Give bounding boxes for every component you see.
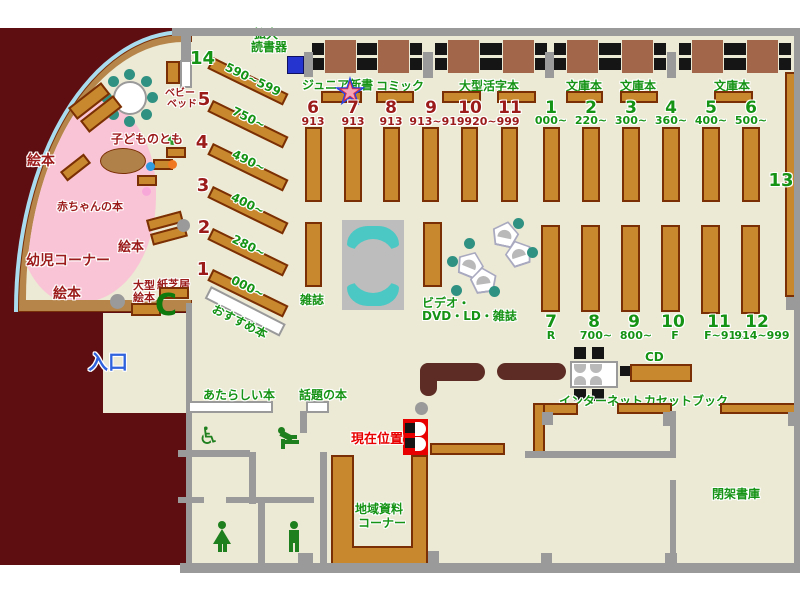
wall-bottom bbox=[180, 563, 800, 573]
chair-dot bbox=[489, 286, 500, 297]
wall-segment bbox=[226, 497, 314, 503]
chair-dot bbox=[141, 76, 152, 87]
pillar bbox=[423, 52, 433, 78]
pillar-dot bbox=[415, 402, 428, 415]
reading-table bbox=[312, 40, 369, 73]
reading-table bbox=[435, 40, 492, 73]
shelf-number: 13 bbox=[764, 170, 798, 191]
wall-segment bbox=[258, 497, 265, 565]
marker-seat bbox=[405, 438, 415, 448]
reading-table bbox=[609, 40, 666, 73]
bookshelf bbox=[701, 225, 720, 314]
video-shelf bbox=[423, 222, 442, 287]
chair-dot bbox=[124, 116, 135, 127]
topical-books-label: 話題の本 bbox=[299, 386, 347, 403]
magazine-label: 雑誌 bbox=[300, 291, 324, 308]
bookshelf bbox=[621, 225, 640, 312]
service-counter bbox=[497, 363, 566, 380]
video-label: DVD・LD・雑誌 bbox=[422, 307, 517, 324]
kids-room-door bbox=[110, 294, 125, 309]
chair bbox=[574, 347, 586, 359]
shelf-number: 2 bbox=[196, 217, 212, 238]
women-toilet-icon bbox=[213, 521, 231, 552]
new-books-label: あたらしい本 bbox=[203, 386, 275, 403]
stool-pink bbox=[142, 187, 151, 196]
bookshelf bbox=[741, 225, 760, 314]
reading-table bbox=[490, 40, 547, 73]
bookshelf bbox=[742, 127, 760, 202]
cd-label: CD bbox=[645, 350, 664, 364]
chair bbox=[620, 366, 630, 376]
shelf-number: 1 bbox=[195, 259, 211, 280]
wall-segment bbox=[178, 450, 250, 457]
kids-oval-rug bbox=[100, 148, 146, 174]
bookshelf bbox=[582, 127, 600, 202]
public-phone-icon: C bbox=[155, 288, 177, 323]
wall-top bbox=[172, 28, 800, 36]
pillar bbox=[545, 52, 554, 78]
shelf-number: 14 bbox=[190, 48, 214, 69]
bookshelf bbox=[501, 127, 518, 202]
step-shelf bbox=[166, 147, 186, 158]
bookshelf bbox=[661, 225, 680, 312]
bookshelf bbox=[344, 127, 362, 202]
reading-table bbox=[679, 40, 736, 73]
pillar-dot bbox=[177, 219, 190, 232]
bookshelf bbox=[541, 225, 560, 312]
reading-table bbox=[734, 40, 791, 73]
bookshelf bbox=[422, 127, 439, 202]
bookshelf bbox=[533, 403, 545, 453]
chair bbox=[592, 347, 604, 359]
stool-orange bbox=[168, 160, 177, 169]
chair-dot bbox=[527, 247, 538, 258]
shelf-number: 3 bbox=[195, 175, 211, 196]
pillar bbox=[304, 52, 313, 77]
bookshelf bbox=[622, 127, 640, 202]
kodomonotomo-label: 子どものとも bbox=[111, 130, 183, 147]
magazine-shelf bbox=[305, 222, 322, 287]
baby-change-icon bbox=[278, 424, 300, 450]
local-materials-label: コーナー bbox=[358, 514, 406, 531]
bookshelf bbox=[720, 403, 797, 414]
baby-bed-label: ベッド bbox=[167, 95, 197, 110]
chair-dot bbox=[447, 256, 458, 267]
chair-dot bbox=[464, 238, 475, 249]
bookshelf bbox=[543, 127, 560, 202]
wall-segment bbox=[320, 452, 327, 565]
entrance-label: 入口 bbox=[88, 346, 128, 375]
chair-dot bbox=[141, 109, 152, 120]
magnifier-reader-label: 読書器 bbox=[251, 38, 287, 55]
bookshelf bbox=[305, 127, 322, 202]
reading-table bbox=[365, 40, 422, 73]
picture-books-label: 絵本 bbox=[118, 236, 144, 255]
service-counter bbox=[420, 363, 437, 396]
wall-right bbox=[794, 28, 800, 573]
bookshelf bbox=[383, 127, 400, 202]
shelf-range: 914~999 bbox=[726, 329, 798, 342]
computer-icon bbox=[574, 376, 586, 385]
bookshelf bbox=[702, 127, 720, 202]
wall-segment bbox=[186, 303, 192, 565]
toddler-corner-label: 幼児コーナー bbox=[26, 250, 110, 270]
computer-icon bbox=[590, 376, 602, 385]
wall-segment bbox=[300, 411, 307, 433]
chair-dot bbox=[108, 76, 119, 87]
bookshelf bbox=[662, 127, 680, 202]
pillar bbox=[665, 553, 677, 564]
chair-dot bbox=[124, 69, 135, 80]
picture-books-label: 絵本 bbox=[53, 283, 81, 303]
pillar bbox=[542, 412, 553, 425]
shelf-number: 5 bbox=[196, 89, 212, 110]
bookshelf bbox=[581, 225, 600, 312]
wall-segment bbox=[525, 451, 676, 458]
picture-books-label: 絵本 bbox=[27, 150, 55, 170]
stool-blue bbox=[146, 162, 155, 171]
wheelchair-icon: ♿ bbox=[198, 422, 220, 450]
baby-books-label: 赤ちゃんの本 bbox=[57, 198, 123, 214]
chair-dot bbox=[147, 92, 158, 103]
bookshelf bbox=[430, 443, 505, 455]
step-shelf bbox=[137, 175, 157, 186]
men-toilet-icon bbox=[285, 521, 303, 552]
marker-seat bbox=[405, 423, 415, 433]
chair-dot bbox=[513, 218, 524, 229]
library-floor-map: 絵本 絵本 絵本 幼児コーナー 赤ちゃんの本 子どものとも ベビー ベッド 大型… bbox=[0, 0, 800, 600]
wall-segment bbox=[178, 497, 204, 503]
shelf-number: 4 bbox=[194, 132, 210, 153]
pillar bbox=[298, 553, 313, 564]
current-location-label: 現在位置 bbox=[351, 428, 403, 447]
baby-bed-shelf bbox=[166, 61, 180, 84]
shelf-range: 500~ bbox=[721, 114, 781, 127]
reading-table bbox=[554, 40, 611, 73]
magnifier-reader-device bbox=[287, 56, 304, 74]
closed-stacks-label: 閉架書庫 bbox=[712, 485, 760, 502]
curved-sofa bbox=[347, 226, 399, 250]
pillar bbox=[541, 553, 552, 564]
pillar bbox=[667, 52, 676, 78]
bookshelf bbox=[461, 127, 478, 202]
cd-shelf bbox=[630, 364, 692, 382]
